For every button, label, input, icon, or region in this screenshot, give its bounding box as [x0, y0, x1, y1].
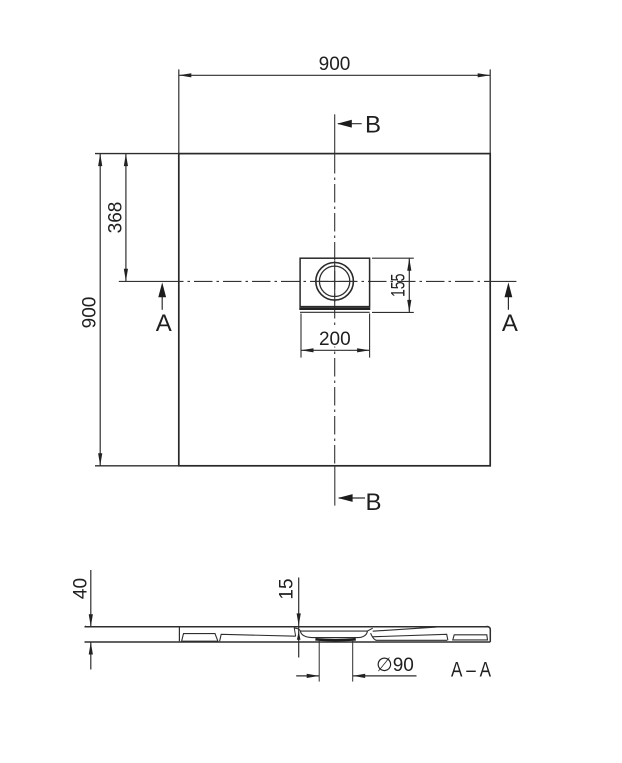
svg-text:200: 200	[319, 329, 351, 350]
svg-text:368: 368	[105, 202, 126, 234]
svg-text:A: A	[156, 310, 172, 337]
svg-text:40: 40	[71, 578, 92, 599]
svg-text:A – A: A – A	[451, 659, 491, 682]
svg-text:B: B	[365, 489, 381, 516]
svg-text:A: A	[502, 310, 518, 337]
svg-text:15: 15	[276, 578, 297, 599]
svg-text:B: B	[365, 111, 381, 138]
svg-text:900: 900	[319, 54, 351, 75]
svg-text:900: 900	[79, 297, 100, 329]
svg-text:∅90: ∅90	[376, 655, 414, 676]
svg-text:155: 155	[387, 274, 409, 297]
